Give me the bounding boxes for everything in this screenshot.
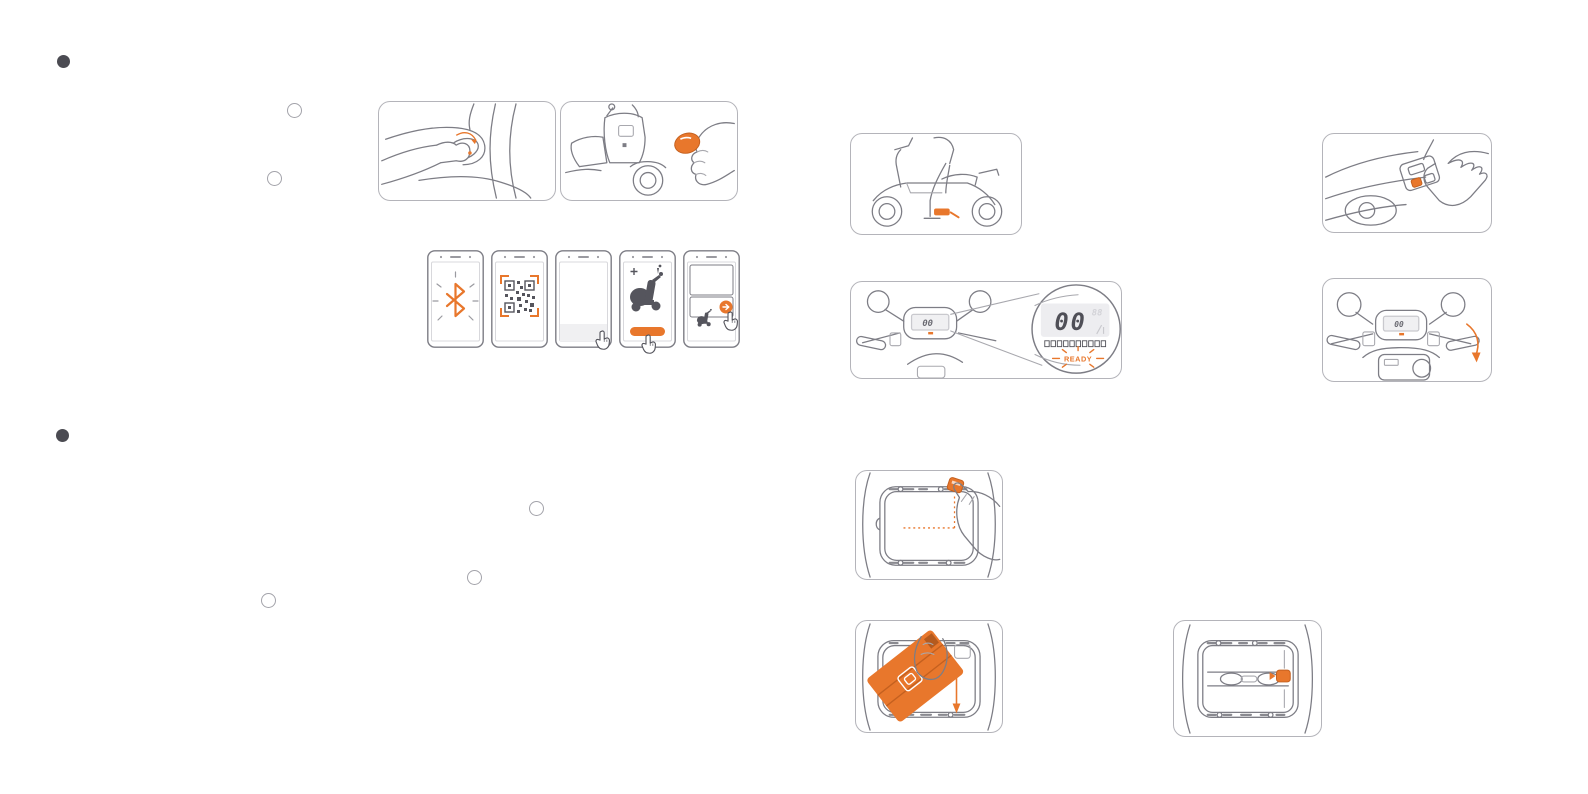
- hand: [691, 123, 734, 185]
- fob-disc-icon: [672, 130, 702, 157]
- ready-label: READY: [1064, 354, 1092, 363]
- step-circle-3: [529, 501, 544, 516]
- dashboard-ready-illustration: 00 00 88 READY: [851, 282, 1121, 378]
- empty-bay-illustration: [1174, 621, 1321, 736]
- phone-scooter-confirm: [619, 250, 676, 348]
- routing-dotted-path: [902, 497, 955, 528]
- down-arrow-icon: [953, 678, 961, 713]
- section-bullet-2: [56, 429, 69, 442]
- mini-dash-indicator: [1399, 333, 1404, 335]
- figure-press-pod-button: [1322, 133, 1492, 233]
- mini-dash-speed: 00: [1394, 320, 1404, 329]
- mini-dash-speed: 00: [922, 319, 933, 329]
- pill-button: [630, 327, 665, 336]
- figure-seat-latch-open: [378, 101, 556, 201]
- lcd-ghost-segments: 88: [1092, 308, 1103, 318]
- manual-page: 00 00 88 READY: [0, 0, 1588, 794]
- figure-empty-bay: [1173, 620, 1322, 737]
- card: [690, 265, 733, 295]
- figure-remove-battery: [855, 620, 1003, 733]
- remove-battery-illustration: [856, 621, 1002, 732]
- throttle-twist-illustration: 00: [1323, 279, 1491, 381]
- mini-dash-indicator: [928, 332, 933, 334]
- step-circle-2: [267, 171, 282, 186]
- step-circle-1: [287, 103, 302, 118]
- seat-latch-illustration: [379, 102, 555, 200]
- pod-button-illustration: [1323, 134, 1491, 232]
- phone-blank-tap: [555, 250, 612, 348]
- lcd-speed: 00: [1055, 308, 1087, 336]
- phone-qr-scan: [491, 250, 548, 348]
- phone-device-list: [683, 250, 740, 348]
- figure-unplug-connector: [855, 470, 1003, 580]
- rider-illustration: [851, 134, 1021, 234]
- phone-bluetooth: [427, 250, 484, 348]
- figure-fob-unlock: [560, 101, 738, 201]
- figure-rider-mount: [850, 133, 1022, 235]
- magnifier-circle: 00 88 READY: [1032, 285, 1120, 373]
- step-circle-5: [261, 593, 276, 608]
- kickstand-highlight-icon: [934, 209, 959, 218]
- figure-dashboard-ready: 00 00 88 READY: [850, 281, 1122, 379]
- section-bullet-1: [57, 55, 70, 68]
- fob-unlock-illustration: [561, 102, 737, 200]
- step-circle-4: [467, 570, 482, 585]
- figure-throttle-twist: 00: [1322, 278, 1492, 382]
- unplug-connector-illustration: [856, 471, 1002, 579]
